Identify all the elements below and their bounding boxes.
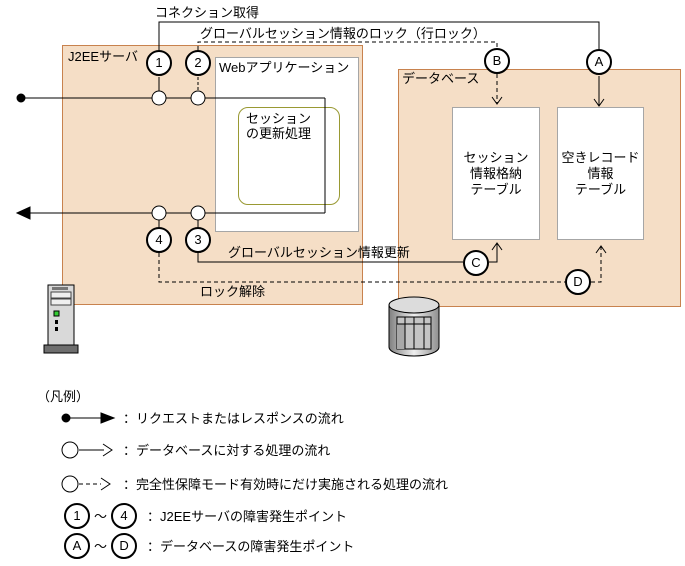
free-table-arrow — [594, 76, 604, 106]
diagram-canvas: セッション 情報格納 テーブル 空きレコード 情報 テーブル — [0, 0, 685, 566]
global-session-lock-label: グローバルセッション情報のロック（行ロック） — [200, 26, 486, 41]
legend-circle-a: A — [64, 533, 90, 559]
connection-acquire-label: コネクション取得 — [155, 5, 259, 20]
legend-title: （凡例） — [37, 389, 89, 404]
database-label: データベース — [402, 71, 479, 86]
failure-point-2: 2 — [185, 50, 211, 76]
failure-point-a: A — [586, 49, 612, 75]
j2ee-server-label: J2EEサーバ — [68, 49, 138, 64]
web-application-label: Webアプリケーション — [219, 60, 349, 75]
legend-row-db-label: ：データベースの障害発生ポイント — [147, 539, 354, 554]
legend-row-integrity-label: ：完全性保障モード有効時にだけ実施される処理の流れ — [123, 477, 448, 492]
tilde: ～ — [94, 509, 107, 524]
db-process-arrow-icon — [62, 442, 112, 458]
session-update-label: セッション の更新処理 — [246, 111, 311, 141]
global-session-update-label: グローバルセッション情報更新 — [228, 245, 410, 260]
lock-release-label: ロック解除 — [200, 284, 265, 299]
legend-row-j2ee-points: 1 ～ 4 ：J2EEサーバの障害発生ポイント — [64, 503, 347, 529]
tilde: ～ — [94, 539, 107, 554]
session-update-line1: セッション — [246, 111, 311, 126]
legend-row-db-process-label: ：データベースに対する処理の流れ — [123, 443, 330, 458]
failure-point-d: D — [565, 269, 591, 295]
flow-junction-circles — [152, 91, 205, 220]
failure-point-c: C — [463, 250, 489, 276]
response-line — [17, 207, 325, 219]
legend-circle-1: 1 — [64, 503, 90, 529]
integrity-mode-arrow-icon — [62, 476, 110, 492]
failure-point-4: 4 — [146, 227, 172, 253]
legend-row-db-points: A ～ D ：データベースの障害発生ポイント — [64, 533, 354, 559]
legend-row-request-label: ：リクエストまたはレスポンスの流れ — [123, 411, 344, 426]
legend-circle-4: 4 — [111, 503, 137, 529]
legend-row-j2ee-label: ：J2EEサーバの障害発生ポイント — [147, 509, 347, 524]
legend-circle-d: D — [111, 533, 137, 559]
failure-point-3: 3 — [185, 227, 211, 253]
failure-point-b: B — [484, 48, 510, 74]
failure-point-1: 1 — [146, 50, 172, 76]
session-update-line2: の更新処理 — [246, 126, 311, 141]
request-response-arrow-icon — [62, 413, 114, 423]
